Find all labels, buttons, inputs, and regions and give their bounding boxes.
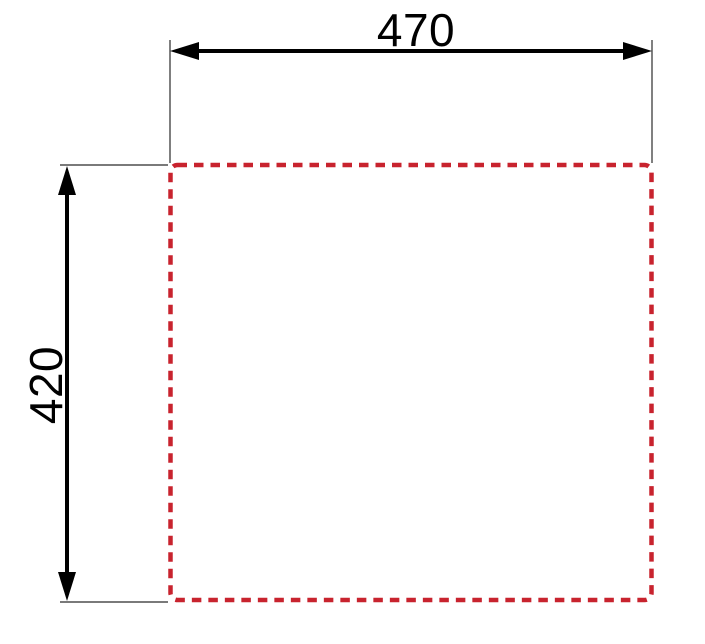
dashed-outline-rect: [171, 165, 652, 600]
arrowhead-left-icon: [170, 42, 199, 60]
arrowhead-up-icon: [58, 166, 76, 195]
height-dimension-label: 420: [20, 346, 72, 424]
arrowhead-right-icon: [623, 42, 652, 60]
dimension-drawing: 470 420: [0, 0, 705, 644]
technical-drawing-canvas: 470 420: [0, 0, 705, 644]
width-dimension-label: 470: [377, 4, 455, 56]
arrowhead-down-icon: [58, 572, 76, 601]
